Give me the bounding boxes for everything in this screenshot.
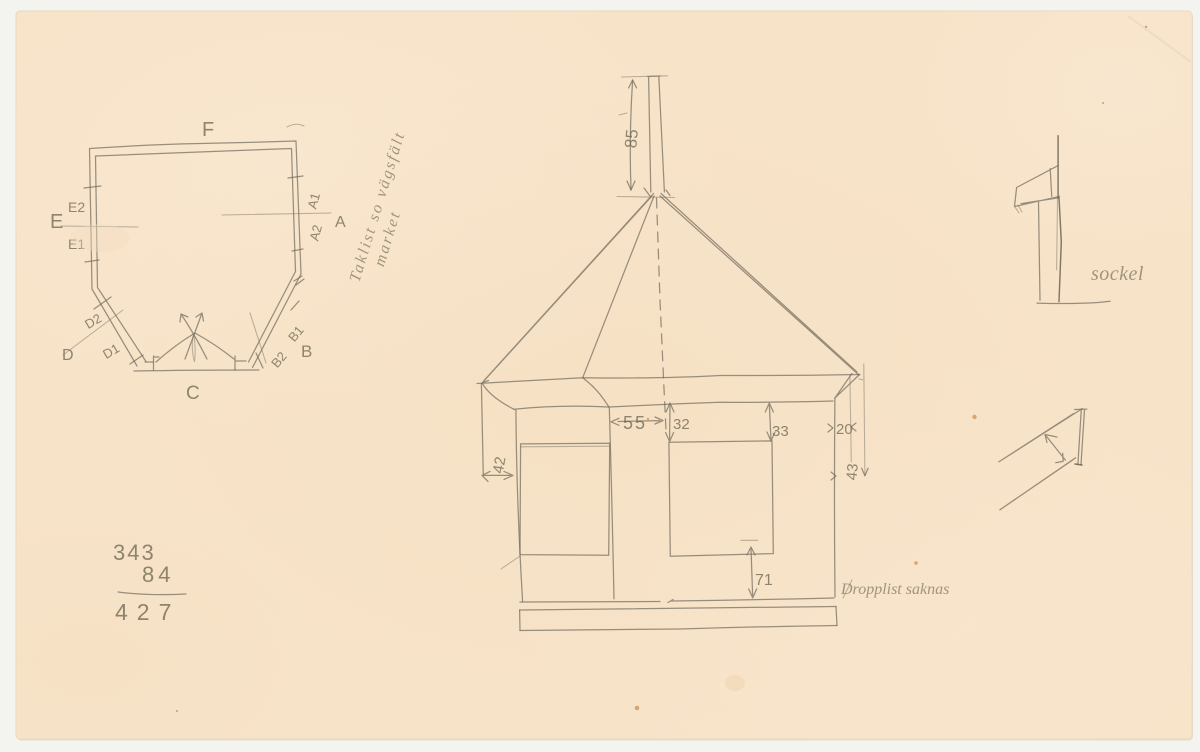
svg-text:B: B <box>301 342 312 361</box>
svg-text:42: 42 <box>490 455 510 474</box>
svg-text:85: 85 <box>621 128 642 149</box>
svg-text:55: 55 <box>623 413 647 433</box>
svg-text:427: 427 <box>115 599 180 625</box>
svg-text:C: C <box>186 383 200 404</box>
svg-text:33: 33 <box>772 423 789 440</box>
svg-text:71: 71 <box>755 572 773 589</box>
svg-text:Dropplist saknas: Dropplist saknas <box>840 581 949 598</box>
svg-text:E2: E2 <box>68 199 85 215</box>
svg-text:84: 84 <box>142 562 174 587</box>
svg-text:32: 32 <box>673 416 690 433</box>
svg-text:43: 43 <box>843 463 861 481</box>
svg-text:F: F <box>202 119 214 141</box>
svg-text:A: A <box>335 214 346 231</box>
svg-text:sockel: sockel <box>1091 263 1144 285</box>
svg-text:D: D <box>62 347 74 364</box>
svg-text:E: E <box>50 211 63 233</box>
